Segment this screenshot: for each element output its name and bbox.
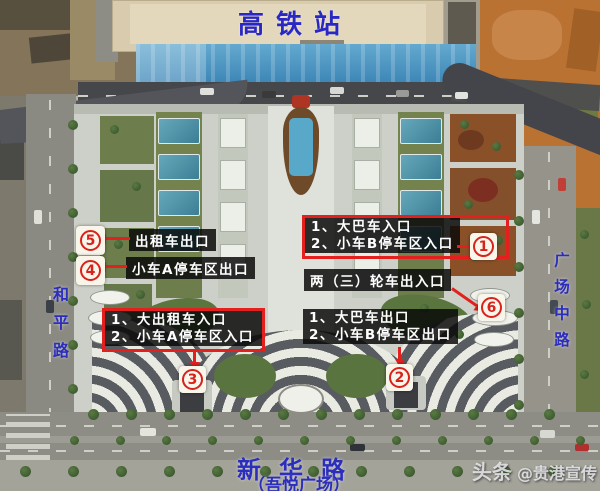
callout-bus-carb-entrance: 1、大巴车入口 2、小车B停车区入口 [305,218,460,253]
map-feature [544,409,555,420]
map-feature [289,118,313,176]
map-feature [430,409,441,420]
callout-line: 2、小车B停车区入口 [311,236,454,253]
map-feature [400,154,442,180]
map-feature [214,354,276,398]
map-feature [396,90,409,97]
map-feature [200,88,214,95]
map-feature [468,409,479,420]
map-feature [68,466,79,477]
callout-taxi-exit: 出租车出口 [129,229,216,251]
marker-1-badge: 1 [470,233,497,260]
map-feature [116,436,125,445]
map-feature [132,182,141,191]
map-feature [240,409,251,420]
map-feature [330,87,344,94]
callout-line: 2、小车A停车区入口 [111,329,256,346]
map-feature [474,332,514,347]
map-feature [484,436,493,445]
callout-two-three-wheeler: 两（三）轮车出入口 [304,269,451,291]
callout-taxi-cara-entrance: 1、大出租车入口 2、小车A停车区入口 [105,311,262,346]
map-feature [100,170,154,222]
arrow-to-marker-3 [193,352,196,362]
callout-taxi-cara-entrance-frame: 1、大出租车入口 2、小车A停车区入口 [102,308,265,352]
marker-2-badge: 2 [386,364,413,391]
marker-3-number: 3 [182,369,203,390]
map-feature [68,164,78,174]
map-feature [514,354,524,364]
callout-line: 2、小车B停车区出口 [309,327,452,344]
map-feature [576,208,600,422]
watermark: 头条 @贵港宣传 [472,456,597,485]
map-feature [164,409,175,420]
map-feature [514,308,524,318]
map-feature [316,409,327,420]
marker-6-badge: 6 [478,294,505,321]
road-name-heping: 和平路 [47,286,71,370]
map-feature [0,425,600,427]
map-feature [455,92,468,99]
map-feature [326,354,388,398]
map-feature [70,436,79,445]
station-name-label: 高铁站 [238,4,352,41]
map-feature [514,170,524,180]
map-feature [68,384,78,394]
map-feature [354,409,365,420]
marker-2-number: 2 [389,367,410,388]
callout-bus-carb-exit: 1、大巴车出口 2、小车B停车区出口 [303,309,458,344]
map-feature [404,466,415,477]
map-feature [400,118,442,144]
map-feature [220,160,246,190]
map-feature [464,200,473,209]
watermark-handle: @贵港宣传 [517,460,597,484]
map-feature [540,430,555,438]
callout-line: 1、大出租车入口 [111,312,256,329]
arrow-to-marker-5 [106,237,130,240]
map-feature [400,190,442,216]
map-feature [532,210,540,224]
map-feature [460,120,469,129]
map-feature [346,436,355,445]
map-feature [392,436,401,445]
map-feature [458,130,484,150]
map-feature [514,262,524,272]
callout-line: 1、大巴车出口 [309,310,452,327]
map-feature [34,210,42,224]
map-feature [278,409,289,420]
map-feature [580,370,589,379]
map-feature [114,240,123,249]
marker-4-number: 4 [80,260,101,281]
map-feature [354,118,380,148]
map-feature [212,466,223,477]
arrow-to-marker-1 [457,245,469,248]
map-feature [116,466,127,477]
map-feature [68,120,78,130]
map-feature [392,409,403,420]
map-feature [354,160,380,190]
map-feature [514,216,524,226]
map-feature [162,436,171,445]
map-feature [530,436,539,445]
map-feature [575,444,589,451]
map-feature [110,125,119,134]
road-name-wuyue-plaza: （吾悦广场） [248,471,350,491]
map-feature [506,409,517,420]
map-feature [514,400,524,410]
map-feature [576,436,585,445]
arrow-to-marker-2 [398,347,401,359]
map-feature [262,91,276,98]
marker-5-number: 5 [80,230,101,251]
marker-3-badge: 3 [179,366,206,393]
map-feature [100,116,154,164]
map-feature [300,436,309,445]
map-feature [88,409,99,420]
callout-car-a-exit: 小车A停车区出口 [126,257,255,279]
map-feature [452,466,463,477]
marker-5-badge: 5 [76,226,105,255]
map-feature [254,436,263,445]
map-feature [208,436,217,445]
map-feature [49,100,51,418]
road-name-guangchang: 广场中路 [550,252,572,358]
map-feature [582,300,591,309]
map-feature [448,2,476,44]
map-feature [0,300,22,380]
map-feature [158,190,200,216]
map-feature [492,142,501,151]
map-feature [158,154,200,180]
arrow-to-marker-4 [106,265,127,268]
map-feature [164,466,175,477]
map-feature [20,466,31,477]
map-feature [140,428,156,436]
map-feature [220,118,246,148]
map-feature [0,0,70,30]
marker-1-number: 1 [473,236,494,257]
map-feature [558,178,566,191]
marker-6-number: 6 [481,297,502,318]
map-feature [68,208,78,218]
map-feature [220,202,246,232]
map-feature [90,290,130,305]
map-feature [202,409,213,420]
map-feature [136,290,145,299]
map-feature [580,230,589,239]
watermark-brand: 头条 [472,456,512,485]
map-feature [492,10,562,60]
map-feature [126,409,137,420]
marker-4-badge: 4 [76,256,105,285]
map-feature [6,414,50,460]
map-feature [158,118,200,144]
callout-line: 1、大巴车入口 [311,219,454,236]
map-feature [438,436,447,445]
aerial-map: 高铁站 和平路 广场中路 新华路 （吾悦广场） 出租车出口 5 小车A停车区出口… [0,0,600,491]
map-feature [468,178,498,202]
